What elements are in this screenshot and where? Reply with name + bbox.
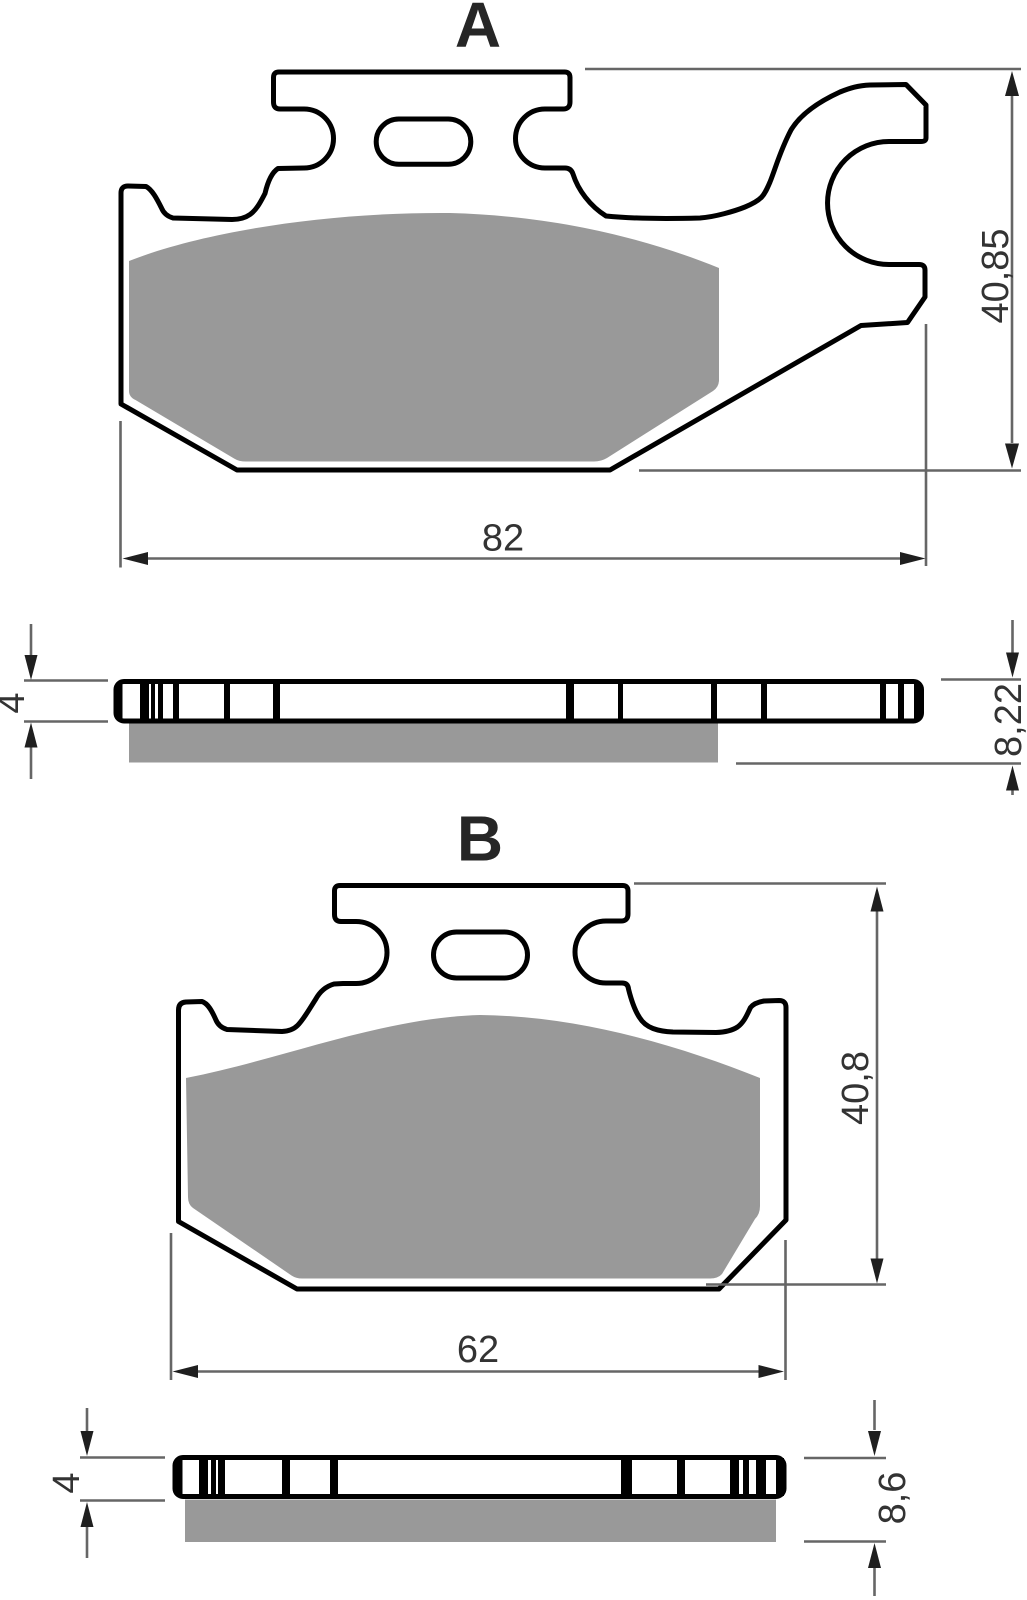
svg-text:40,85: 40,85 — [975, 228, 1017, 323]
svg-text:A: A — [455, 0, 501, 61]
svg-text:8,22: 8,22 — [988, 683, 1027, 757]
svg-text:82: 82 — [482, 518, 524, 560]
svg-text:4: 4 — [0, 692, 33, 713]
svg-text:8,6: 8,6 — [872, 1472, 914, 1525]
svg-text:4: 4 — [46, 1472, 88, 1493]
svg-text:B: B — [457, 803, 503, 875]
svg-text:62: 62 — [457, 1329, 499, 1371]
svg-text:40,8: 40,8 — [835, 1051, 877, 1125]
